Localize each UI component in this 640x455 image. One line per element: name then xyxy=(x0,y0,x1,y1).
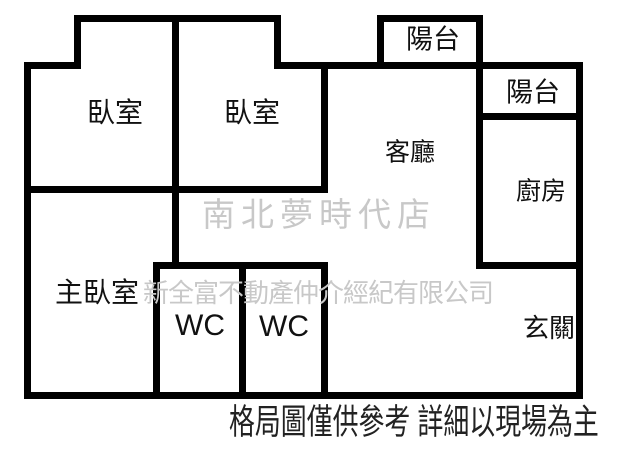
wall-balcony-top-left xyxy=(377,15,384,69)
caption-disclaimer: 格局圖僅供參考 詳細以現場為主 xyxy=(229,404,599,443)
wall-outer-right xyxy=(576,62,583,399)
wall-balcony-right-bottom xyxy=(476,113,583,120)
wall-kitchen-left xyxy=(476,15,483,269)
room-label-bedroom-1: 臥室 xyxy=(87,99,143,127)
room-label-entry-hall: 玄關 xyxy=(523,315,575,341)
wall-notch-vertical xyxy=(74,15,81,69)
wall-bedrooms-bottom xyxy=(24,186,328,193)
room-label-master-bedroom: 主臥室 xyxy=(55,279,139,307)
wall-outer-left xyxy=(24,62,31,399)
room-label-wc-2: WC xyxy=(259,312,309,342)
watermark-agency-name: 新全富不動產仲介經紀有限公司 xyxy=(143,281,493,307)
room-label-living-room: 客廳 xyxy=(385,141,435,166)
room-label-balcony-right: 陽台 xyxy=(506,80,560,107)
room-label-kitchen: 廚房 xyxy=(516,180,566,205)
watermark-store-name: 南北夢時代店 xyxy=(202,200,436,233)
room-label-balcony-top: 陽台 xyxy=(406,27,460,54)
wall-step-left xyxy=(24,62,81,69)
room-label-wc-1: WC xyxy=(175,311,225,341)
wall-step-down xyxy=(274,15,281,69)
wall-bedroom-divider xyxy=(172,15,179,269)
wall-kitchen-bottom xyxy=(476,262,583,269)
wall-outer-bottom xyxy=(24,392,583,399)
wall-balcony-top-top xyxy=(377,15,483,22)
room-label-bedroom-2: 臥室 xyxy=(224,99,280,127)
wall-bedroom2-right xyxy=(321,62,328,193)
floor-plan: 臥室 臥室 陽台 陽台 客廳 廚房 主臥室 WC WC 玄關 南北夢時代店 新全… xyxy=(0,0,640,455)
